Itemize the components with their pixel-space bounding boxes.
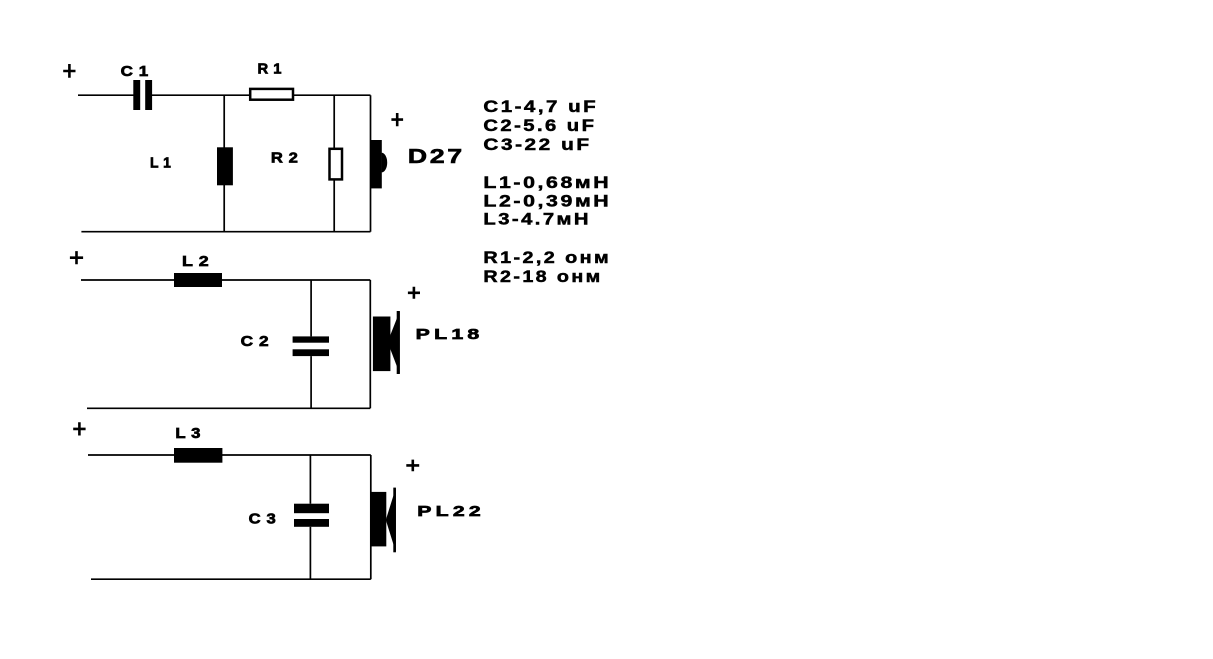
svg-text:R1-2,2 онм: R1-2,2 онм	[483, 249, 611, 267]
svg-text:C 2: C 2	[241, 333, 270, 350]
svg-text:C2-5.6 uF: C2-5.6 uF	[483, 117, 596, 135]
svg-text:L1-0,68мН: L1-0,68мН	[483, 174, 611, 192]
svg-text:L 3: L 3	[175, 425, 201, 442]
svg-text:L3-4.7мН: L3-4.7мН	[483, 211, 591, 229]
svg-text:R 2: R 2	[271, 150, 299, 167]
svg-text:C 3: C 3	[249, 511, 277, 528]
svg-text:C1-4,7 uF: C1-4,7 uF	[483, 98, 598, 116]
svg-text:D27: D27	[408, 145, 465, 168]
svg-text:L2-0,39мН: L2-0,39мН	[483, 192, 611, 210]
svg-text:PL22: PL22	[417, 503, 485, 520]
svg-text:L 1: L 1	[150, 155, 171, 172]
svg-text:R 1: R 1	[258, 60, 283, 77]
svg-text:C 1: C 1	[121, 63, 149, 80]
svg-text:C3-22 uF: C3-22 uF	[483, 136, 591, 154]
svg-text:R2-18 онм: R2-18 онм	[483, 268, 602, 286]
svg-text:L 2: L 2	[182, 253, 209, 270]
svg-text:PL18: PL18	[416, 326, 484, 343]
